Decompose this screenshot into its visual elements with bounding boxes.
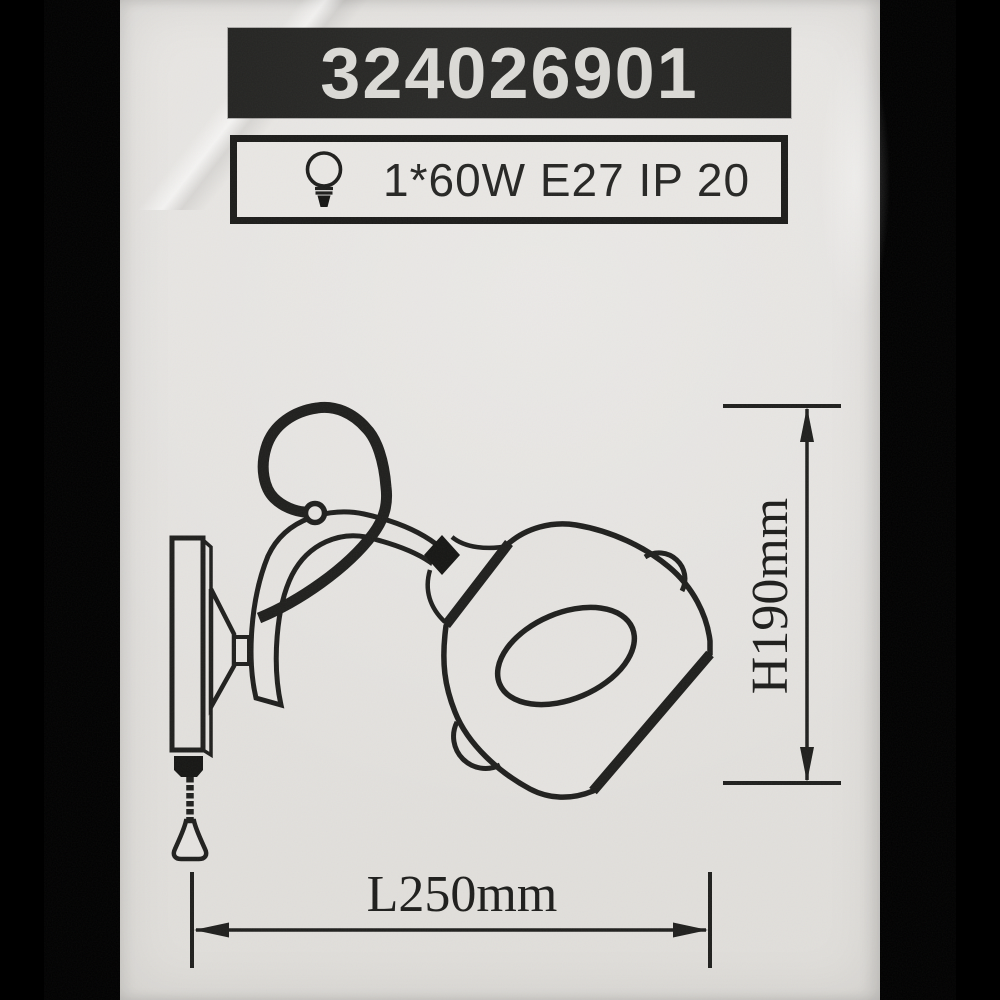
arrow-up bbox=[800, 407, 814, 442]
label-photo: 324026901 1*60W E27 IP 20 bbox=[0, 0, 1000, 1000]
length-dimension-label: L250mm bbox=[367, 869, 558, 921]
arrow-right bbox=[673, 923, 708, 938]
arrow-left bbox=[194, 923, 229, 938]
wall-plate bbox=[172, 538, 211, 755]
lamp-shade bbox=[444, 524, 710, 797]
switch-cap bbox=[174, 756, 203, 777]
arrow-down bbox=[800, 747, 814, 782]
pull-knob bbox=[174, 821, 206, 859]
height-dimension-label: H190mm bbox=[745, 498, 797, 694]
scroll-ring bbox=[306, 504, 325, 523]
wall-sconce-drawing bbox=[0, 0, 1000, 1000]
